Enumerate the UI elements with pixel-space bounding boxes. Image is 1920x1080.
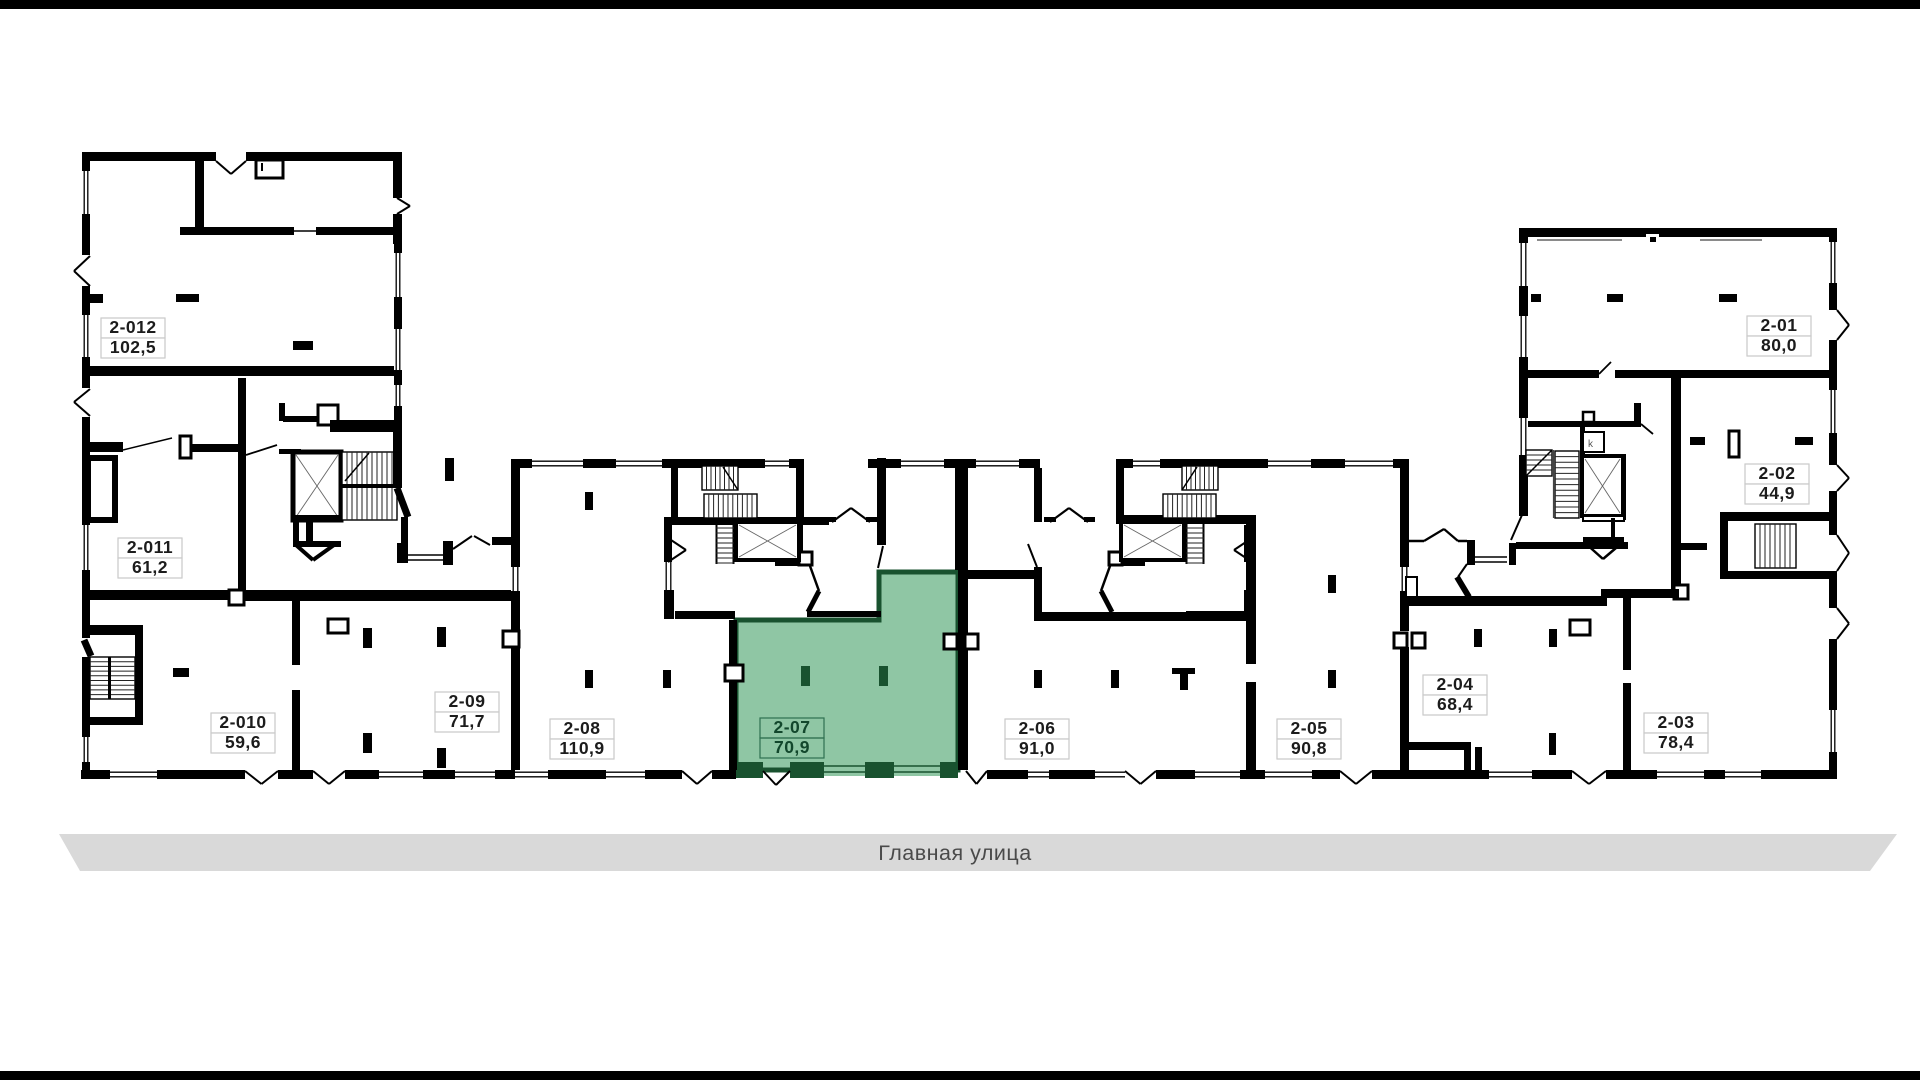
svg-text:2-09: 2-09: [448, 691, 485, 711]
svg-text:90,8: 90,8: [1291, 738, 1327, 758]
svg-text:91,0: 91,0: [1019, 738, 1055, 758]
svg-text:2-05: 2-05: [1290, 718, 1327, 738]
svg-text:Главная улица: Главная улица: [878, 841, 1031, 865]
svg-text:68,4: 68,4: [1437, 694, 1473, 714]
svg-text:78,4: 78,4: [1658, 732, 1694, 752]
svg-text:71,7: 71,7: [449, 711, 485, 731]
svg-text:61,2: 61,2: [132, 557, 168, 577]
svg-text:2-010: 2-010: [219, 712, 266, 732]
svg-text:2-012: 2-012: [109, 317, 156, 337]
svg-text:70,9: 70,9: [774, 737, 810, 757]
svg-text:2-01: 2-01: [1760, 315, 1797, 335]
svg-text:80,0: 80,0: [1761, 335, 1797, 355]
svg-text:110,9: 110,9: [559, 738, 604, 758]
svg-text:2-02: 2-02: [1758, 463, 1795, 483]
svg-text:44,9: 44,9: [1759, 483, 1795, 503]
svg-text:2-011: 2-011: [127, 537, 173, 557]
svg-text:2-06: 2-06: [1018, 718, 1055, 738]
svg-text:2-03: 2-03: [1657, 712, 1694, 732]
svg-text:2-07: 2-07: [773, 717, 810, 737]
svg-text:2-04: 2-04: [1436, 674, 1473, 694]
svg-text:59,6: 59,6: [225, 732, 261, 752]
svg-text:2-08: 2-08: [563, 718, 600, 738]
svg-text:102,5: 102,5: [110, 337, 156, 357]
